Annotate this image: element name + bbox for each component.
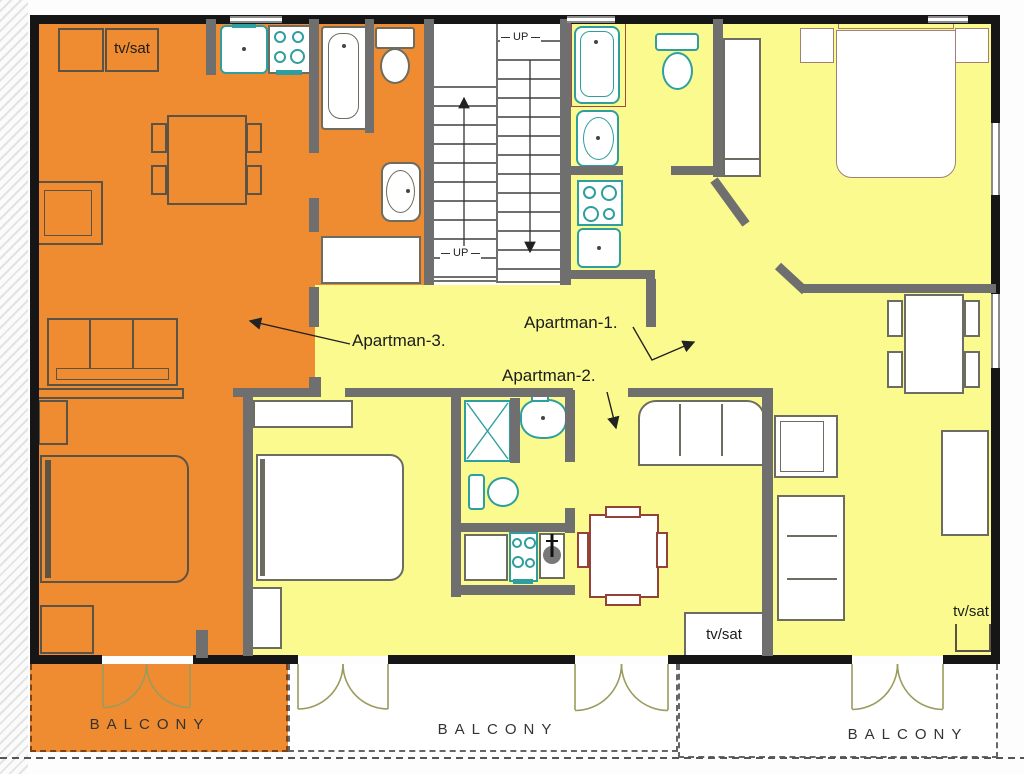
wall-ap2-bath-bottom (458, 523, 575, 532)
ap3-washbasin-bowl (386, 170, 415, 213)
ap1-wardrobe (723, 38, 761, 174)
ap2-dining-table (589, 514, 659, 598)
apartman1-label: Apartman-1. (524, 313, 618, 333)
ap3-sofa-divider-2 (132, 320, 134, 368)
ap2-bed-headboard (260, 459, 265, 576)
ap3-toilet-tank (375, 27, 415, 49)
wall-ap2-bath-left (451, 392, 461, 597)
wall-exterior-bottom-3 (388, 655, 575, 664)
ap1-burner-1 (583, 186, 596, 199)
ap1-sofa-divider-1 (787, 535, 837, 537)
ap2-sink-bowl (543, 546, 561, 564)
ap3-toilet-bowl (380, 48, 410, 84)
wall-shower-divider (510, 398, 520, 463)
wall-stair-right (560, 19, 571, 285)
wall-ap3-kitchen-v1 (309, 19, 319, 153)
ap1-chair-2 (887, 351, 903, 388)
ap3-burner-4 (290, 49, 305, 64)
apartman2-label: Apartman-2. (502, 366, 596, 386)
wall-ap1-wc-v (713, 19, 723, 177)
ap2-burner-2 (524, 537, 536, 549)
ap1-tv-sat-unit (955, 624, 991, 652)
ap1-sideboard (941, 430, 989, 536)
wall-hall-h (560, 270, 655, 279)
stair-flight-right (496, 21, 562, 283)
ap1-burner-4 (603, 208, 615, 220)
window-right-bedroom (991, 123, 1000, 195)
wall-ap3-kitchen-v2 (309, 198, 319, 232)
ap1-armchair-seat (780, 421, 824, 472)
ap1-mini-sink-drain (597, 246, 601, 250)
ap3-chair-3 (246, 123, 262, 153)
ap2-burner-3 (512, 556, 524, 568)
ap2-sofa (638, 400, 765, 466)
up-label-bottom: UP (440, 247, 481, 259)
ap3-stove-front (276, 70, 302, 75)
up-text-bottom: UP (453, 247, 468, 259)
wall-ap3-hall-stub (309, 287, 319, 327)
wall-kitchen-stub (206, 19, 216, 75)
floor-plan: BALCONY BALCONY BALCONY UP UP tv/sat (0, 0, 1024, 774)
wall-ap2-door-pillar (309, 377, 321, 397)
ap2-sofa-divider-2 (721, 404, 723, 456)
ap1-sofa (777, 495, 845, 621)
wall-ap2-kitchen-bottom (451, 585, 575, 595)
ap1-tvsat-label: tv/sat (944, 603, 998, 620)
balcony-apartman2 (288, 664, 678, 752)
ap3-chair-2 (151, 165, 167, 195)
balcony-label-1: BALCONY (838, 726, 978, 743)
wall-balcony-stub (196, 630, 208, 658)
ap3-bed-bench (40, 605, 94, 654)
ap1-bathtub-drain (594, 40, 598, 44)
ap3-shelf (36, 388, 184, 399)
ap2-stove-front (513, 579, 533, 584)
ap2-washbasin-drain (541, 416, 545, 420)
ap1-toilet-tank (655, 33, 699, 51)
ap1-nightstand-left (800, 28, 834, 63)
ap1-bench (723, 158, 761, 177)
ap2-toilet-bowl (487, 477, 519, 507)
ap1-chair-3 (964, 300, 980, 337)
ap1-toilet-bowl (662, 52, 693, 90)
ap2-chair-4 (656, 532, 668, 568)
ap3-closet (321, 236, 421, 284)
wall-exterior-bottom-1 (30, 655, 102, 664)
ap3-burner-1 (274, 31, 286, 43)
window-top-bath (567, 16, 615, 23)
ap2-sofa-divider-1 (679, 404, 681, 456)
ap1-nightstand-right (955, 28, 989, 63)
window-top-bedroom (928, 16, 968, 23)
wall-ap1-wc-h (671, 166, 719, 175)
ap2-chair-1 (605, 506, 641, 518)
ap3-bathtub-drain (342, 44, 346, 48)
up-label-top: UP (500, 31, 541, 43)
ap3-bed-headboard (45, 460, 51, 578)
ap1-burner-3 (583, 206, 599, 222)
ap1-chair-4 (964, 351, 980, 388)
wall-exterior-bottom-4 (668, 655, 852, 664)
ap2-double-bed (256, 454, 404, 581)
wall-exterior-bottom-2 (193, 655, 298, 664)
up-text-top: UP (513, 31, 528, 43)
wall-ap2-bedroom-left (243, 390, 253, 656)
ap1-washbasin-tap (596, 136, 600, 140)
balcony-apartman1 (678, 664, 998, 758)
wall-ap3-bath-v (365, 19, 374, 133)
ap2-chair-3 (577, 532, 589, 568)
ap2-toilet-tank (468, 474, 485, 510)
ap2-chair-2 (605, 594, 641, 606)
wall-hall-stub (646, 279, 656, 327)
wall-exterior-left (30, 15, 39, 660)
ap3-chair-1 (151, 123, 167, 153)
balcony-label-2: BALCONY (428, 721, 568, 738)
ap3-nightstand (38, 400, 68, 445)
window-top-kitchen (230, 16, 282, 23)
ap3-sofa-front (56, 368, 169, 380)
ap3-burner-3 (274, 51, 286, 63)
wall-ap1-bedroom-bottom (801, 284, 996, 293)
window-right-dining (991, 294, 1000, 368)
ap2-tvsat-label: tv/sat (684, 626, 764, 643)
ap3-washbasin-tap (406, 189, 410, 193)
ap1-dining-table (904, 294, 964, 394)
ap1-double-bed (836, 30, 956, 178)
wall-stair-left (424, 19, 434, 285)
ap3-tv-cabinet (58, 28, 104, 72)
ap3-sink-drain (242, 47, 246, 51)
ap2-burner-1 (512, 538, 522, 548)
wall-exterior-bottom-5 (943, 655, 1000, 664)
ap3-burner-2 (292, 31, 304, 43)
balcony-apartman3 (30, 664, 288, 752)
wall-exterior-top (30, 15, 1000, 24)
ap3-sofa-divider-1 (89, 320, 91, 368)
ap1-sofa-divider-2 (787, 578, 837, 580)
ap3-double-bed (40, 455, 189, 583)
ap3-dining-table (167, 115, 247, 205)
ap2-nightstand (249, 587, 282, 649)
ap3-tvsat-label: tv/sat (105, 40, 159, 57)
wall-ap1-living-left (762, 388, 773, 656)
ap2-shower (464, 400, 511, 462)
wall-ap1-bath-h1 (571, 166, 623, 175)
ap2-burner-4 (525, 558, 535, 568)
ap2-kitchen-counter (464, 534, 508, 581)
balcony-label-3: BALCONY (80, 716, 220, 733)
ap1-chair-1 (887, 300, 903, 337)
wall-ap2-living-top (628, 388, 773, 397)
ap3-armchair-seat (44, 190, 92, 236)
wall-ap2-bath-right-1 (565, 390, 575, 462)
ap3-chair-4 (246, 165, 262, 195)
ap2-wardrobe-shelf (253, 400, 353, 428)
hatched-margin (0, 0, 28, 774)
apartman3-label: Apartman-3. (352, 331, 446, 351)
ap1-burner-2 (601, 185, 617, 201)
